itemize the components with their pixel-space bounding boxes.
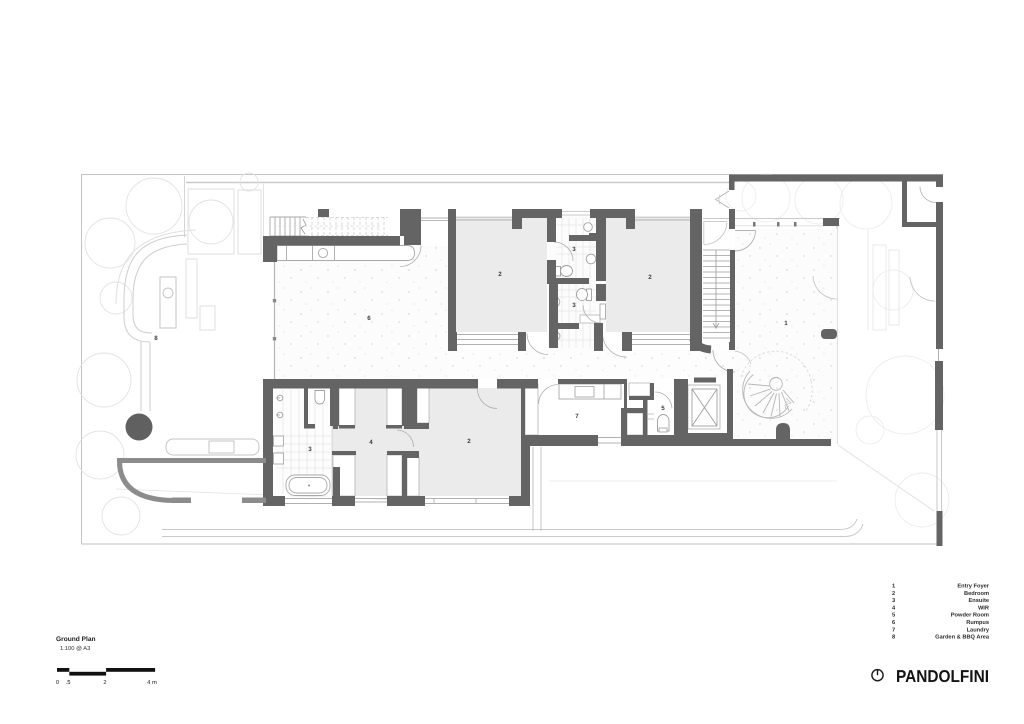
svg-text:2: 2 (467, 438, 471, 445)
svg-text:0: 0 (56, 679, 59, 686)
svg-text:8: 8 (892, 635, 895, 641)
svg-text:2: 2 (103, 679, 106, 686)
svg-text:3: 3 (892, 598, 895, 604)
svg-text:WIR: WIR (978, 605, 989, 611)
svg-text:6: 6 (892, 620, 895, 626)
svg-text:6: 6 (367, 315, 371, 322)
svg-text:3: 3 (308, 446, 312, 453)
svg-text:4 m: 4 m (147, 680, 157, 686)
svg-text:Rumpus: Rumpus (966, 620, 989, 626)
svg-text:Powder Room: Powder Room (951, 612, 989, 619)
svg-text:1: 1 (892, 584, 895, 590)
svg-text:.5: .5 (66, 680, 71, 686)
svg-text:5: 5 (661, 405, 665, 412)
svg-text:Laundry: Laundry (967, 626, 990, 633)
svg-text:1:100 @ A3: 1:100 @ A3 (60, 645, 90, 652)
svg-text:Garden & BBQ Area: Garden & BBQ Area (935, 634, 990, 641)
svg-text:Ground Plan: Ground Plan (56, 636, 96, 643)
svg-text:3: 3 (572, 246, 576, 253)
svg-text:Entry Foyer: Entry Foyer (957, 584, 989, 590)
svg-text:2: 2 (648, 274, 652, 281)
svg-text:2: 2 (892, 591, 895, 597)
svg-text:7: 7 (892, 627, 895, 633)
svg-text:5: 5 (892, 613, 895, 619)
svg-text:8: 8 (154, 335, 158, 342)
svg-text:3: 3 (572, 302, 576, 309)
svg-text:Ensuite: Ensuite (968, 597, 989, 604)
svg-text:Bedroom: Bedroom (964, 590, 989, 597)
svg-text:7: 7 (575, 413, 579, 420)
svg-text:4: 4 (369, 439, 373, 446)
svg-text:PANDOLFINI: PANDOLFINI (896, 666, 989, 686)
svg-text:2: 2 (498, 271, 502, 278)
svg-text:1: 1 (784, 320, 788, 327)
